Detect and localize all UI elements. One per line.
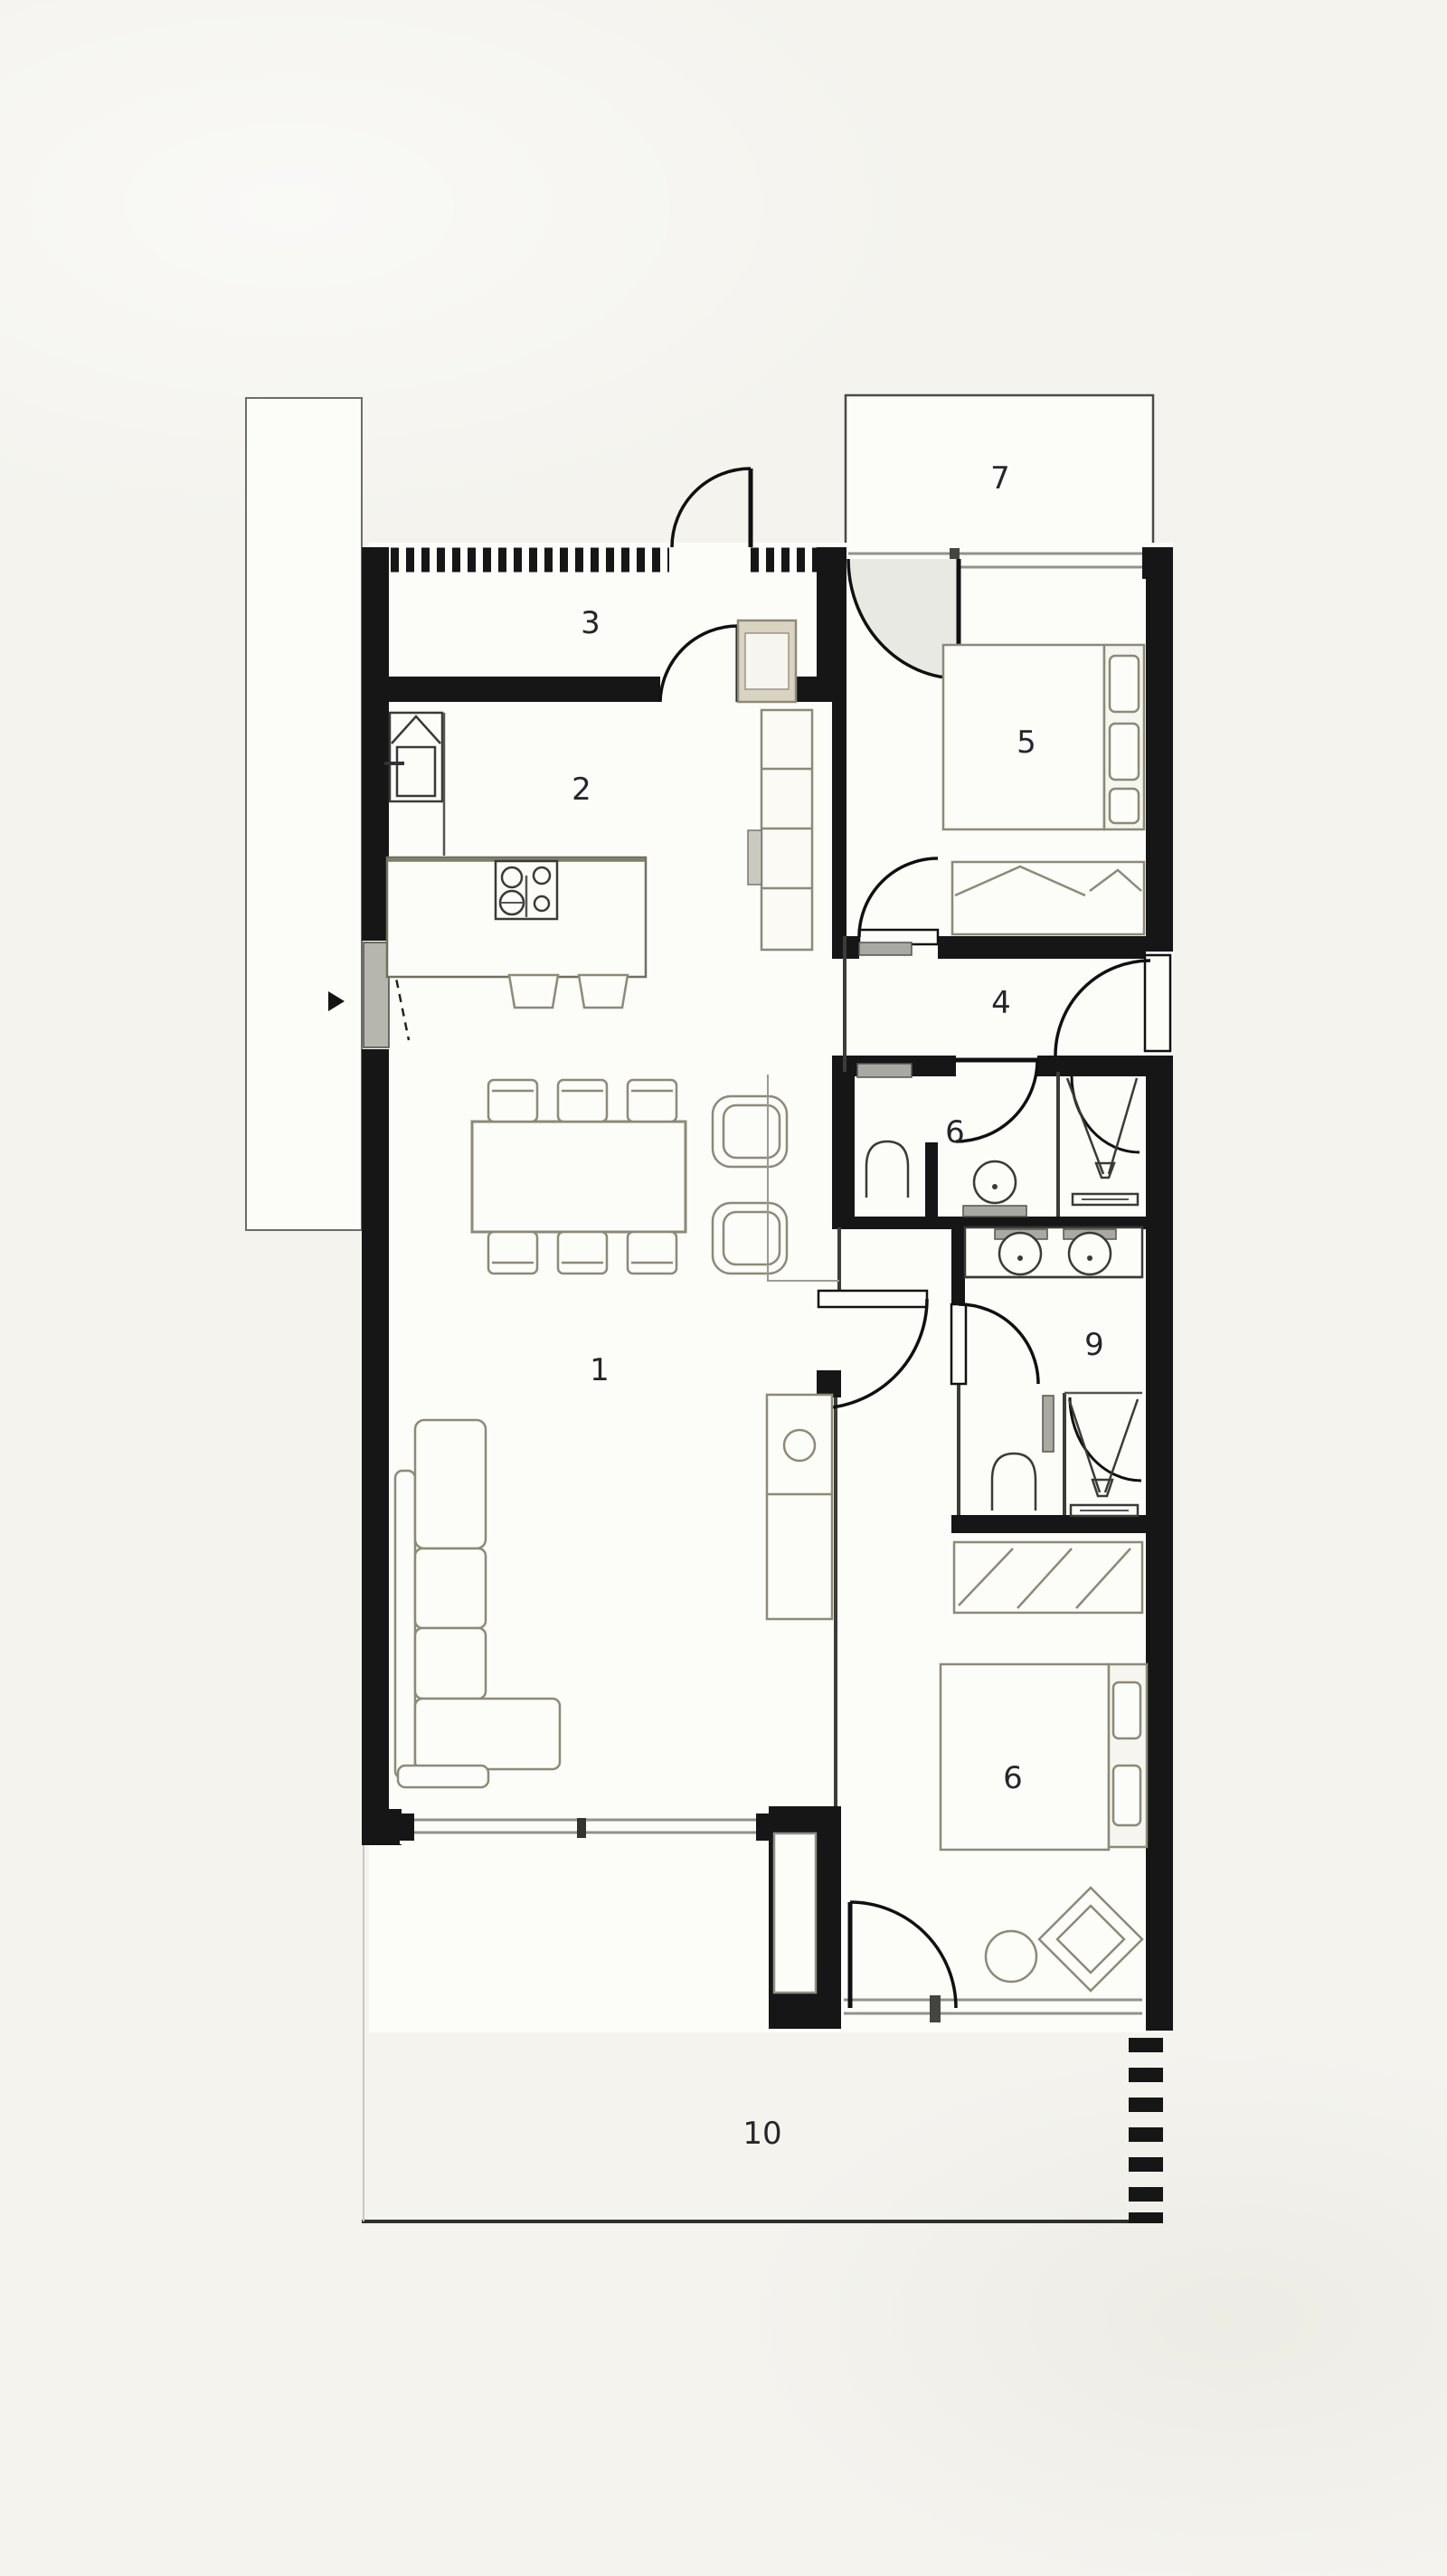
- room-label-balcony: 7: [990, 460, 1010, 497]
- door-top-exterior: [672, 469, 751, 547]
- wall-bath6-stub: [925, 1142, 938, 1217]
- room-label-entry-hall: 3: [581, 605, 601, 641]
- wall-left-upper: [362, 547, 389, 941]
- floor-plan-svg: 1 2 3 4 5 6 7 6 9 10: [0, 0, 1447, 2576]
- washbasin: [999, 1233, 1041, 1274]
- kitchen-island-cooktop: [387, 857, 646, 977]
- wall-bath6-left: [832, 1072, 855, 1227]
- wall-hall-bottom-stub: [796, 677, 819, 702]
- dining-set: [472, 1080, 686, 1274]
- hall-closet: [738, 620, 796, 702]
- hall4-shelf: [859, 942, 912, 955]
- window-inset: [774, 1833, 816, 1993]
- room-label-hallway: 4: [991, 985, 1011, 1021]
- window-living-sliding: [400, 1814, 769, 1844]
- wardrobe: [952, 862, 1144, 934]
- walkway-area: [246, 398, 362, 1230]
- bath6-shelf: [857, 1064, 912, 1077]
- dining-chairs-bottom: [488, 1232, 676, 1274]
- floor-plan-page: 1 2 3 4 5 6 7 6 9 10: [0, 0, 1447, 2576]
- wall-hall4-bottom-b: [1037, 1056, 1146, 1076]
- dashed-terrace-wall: [1129, 2038, 1163, 2223]
- wall-under-bedroom5-b: [938, 936, 1146, 959]
- wall-ensuite-bottom: [951, 1515, 1146, 1533]
- room-label-terrace: 10: [742, 2116, 781, 2152]
- basin-counter: [963, 1206, 1026, 1217]
- vanity: [965, 1227, 1142, 1277]
- room-label-ensuite: 9: [1084, 1327, 1104, 1363]
- wardrobe: [954, 1542, 1142, 1613]
- washbasin: [974, 1161, 1016, 1203]
- room-label-bedroom-top: 5: [1017, 724, 1036, 761]
- window-bedroom-bottom: [841, 1993, 1142, 2026]
- wall-right-lower: [1146, 1056, 1173, 2031]
- wall-vanity-left: [951, 1227, 965, 1304]
- washbasin: [1069, 1233, 1111, 1274]
- double-bed: [941, 1664, 1147, 1850]
- wall-bedroom5-left: [832, 547, 846, 936]
- dining-chairs-top: [488, 1080, 676, 1122]
- bedroom-5-furniture: [943, 645, 1144, 934]
- double-bed: [943, 645, 1144, 829]
- kitchen-sink: [384, 713, 442, 801]
- room-label-bathroom: 6: [945, 1114, 965, 1151]
- room-label-kitchen: 2: [572, 772, 591, 808]
- wall-right-upper: [1146, 547, 1173, 952]
- room-label-living: 1: [590, 1352, 610, 1388]
- wall-hall-bottom: [387, 677, 660, 702]
- wall-left-lower: [362, 1049, 389, 1845]
- room-label-bedroom-bottom: 6: [1003, 1760, 1023, 1796]
- living-cabinet: [767, 1395, 832, 1619]
- wall-bottom-left-block: [362, 1809, 402, 1845]
- wall-lobby-hinge-block: [817, 1370, 841, 1397]
